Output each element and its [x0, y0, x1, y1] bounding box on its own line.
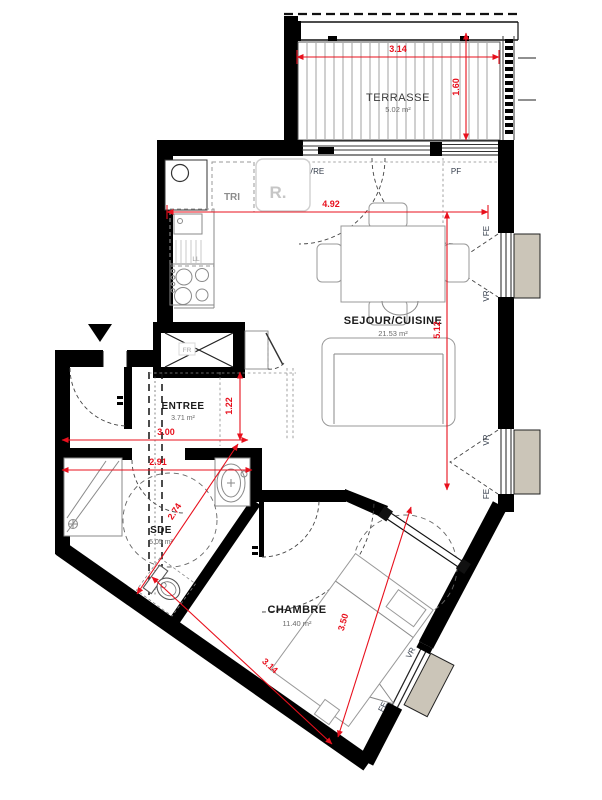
- washbasin: [215, 458, 250, 506]
- terrace: TERRASSE 5.02 m²: [284, 14, 536, 154]
- cupboard-door-leaf: [266, 333, 283, 365]
- chambre-door-leaf: [259, 500, 264, 557]
- sink-bowl: [174, 214, 202, 234]
- floor-plan-drawing: TERRASSE 5.02 m²: [0, 0, 602, 800]
- roller-shutter-box-3: [404, 653, 454, 716]
- duct-symbol: [172, 165, 189, 182]
- sink-tap: [178, 219, 183, 224]
- terrace-separator-hatch: [503, 36, 514, 140]
- waste-sorting-box: [212, 162, 254, 212]
- shutter-label-vr-2: VR: [482, 434, 491, 445]
- entry-door-leaf: [124, 367, 132, 429]
- sejour-chambre-partition: [250, 490, 346, 502]
- washing-machine-label: LL: [192, 256, 200, 263]
- sde-label: SDE: [150, 525, 172, 536]
- cooktop: [170, 264, 214, 305]
- roller-shutter-box-2: [514, 430, 540, 494]
- dining-table: [317, 203, 469, 325]
- dim-terrasse-width: 3.14: [389, 44, 407, 54]
- sejour-label: SEJOUR/CUISINE: [344, 315, 443, 327]
- fridge-slot-label: R.: [270, 183, 287, 202]
- chambre-label: CHAMBRE: [267, 604, 326, 616]
- floor-plan: TERRASSE 5.02 m²: [0, 0, 602, 800]
- chambre-area: 11.40 m²: [282, 619, 312, 628]
- entree-area: 3.71 m²: [171, 415, 195, 422]
- sde: SDE 5.05 m²: [64, 458, 250, 616]
- dim-sejour-depth: 5.12: [432, 321, 442, 339]
- fridge-niche-top: [153, 322, 245, 333]
- dim-sde-diagonal: 2.74: [166, 501, 184, 521]
- entry-wall-west: [55, 350, 103, 367]
- sliding-door-panel: [378, 506, 471, 574]
- southeast-diagonal-wall-b: [366, 706, 395, 762]
- terrace-area: 5.02 m²: [385, 105, 411, 114]
- fixed-window-label: PF: [451, 167, 461, 176]
- dim-sejour-width: 4.92: [322, 199, 340, 209]
- dim-entree-width: 3.00: [157, 427, 175, 437]
- sofa: [322, 338, 455, 426]
- corner-cupboard: [245, 331, 284, 369]
- fridge-label: FR: [183, 347, 192, 354]
- roller-shutter-box-1: [514, 234, 540, 298]
- entrance-arrow: [88, 324, 112, 342]
- fridge-niche-right: [233, 330, 245, 370]
- terrace-label: TERRASSE: [366, 92, 430, 104]
- top-wall-left: [157, 140, 303, 156]
- window-label-fe-1: FE: [482, 226, 491, 236]
- right-wall-b: [498, 300, 514, 428]
- right-wall-a: [498, 156, 514, 232]
- sejour-furniture: SEJOUR/CUISINE 21.53 m²: [317, 203, 469, 426]
- shutter-label-vr-1: VR: [482, 290, 491, 301]
- dim-terrasse-depth: 1.60: [451, 78, 461, 96]
- sejour-area: 21.53 m²: [378, 329, 408, 338]
- bay-mullion: [430, 142, 442, 156]
- dim-entree-depth: 1.22: [224, 397, 234, 415]
- dim-sde-width: 2.91: [149, 457, 167, 467]
- right-window-2: VR FE: [450, 425, 540, 499]
- sliding-bay-leaf: [318, 147, 334, 154]
- entree-north-wall: [153, 367, 245, 378]
- chambre-door-swing: [262, 500, 319, 557]
- top-wall-right-corner: [498, 140, 514, 156]
- fridge-space: FR: [165, 333, 233, 367]
- window-label-fe-2: FE: [482, 489, 491, 499]
- waste-sorting-label: TRI: [224, 192, 240, 203]
- entree-label: ENTREE: [162, 401, 205, 412]
